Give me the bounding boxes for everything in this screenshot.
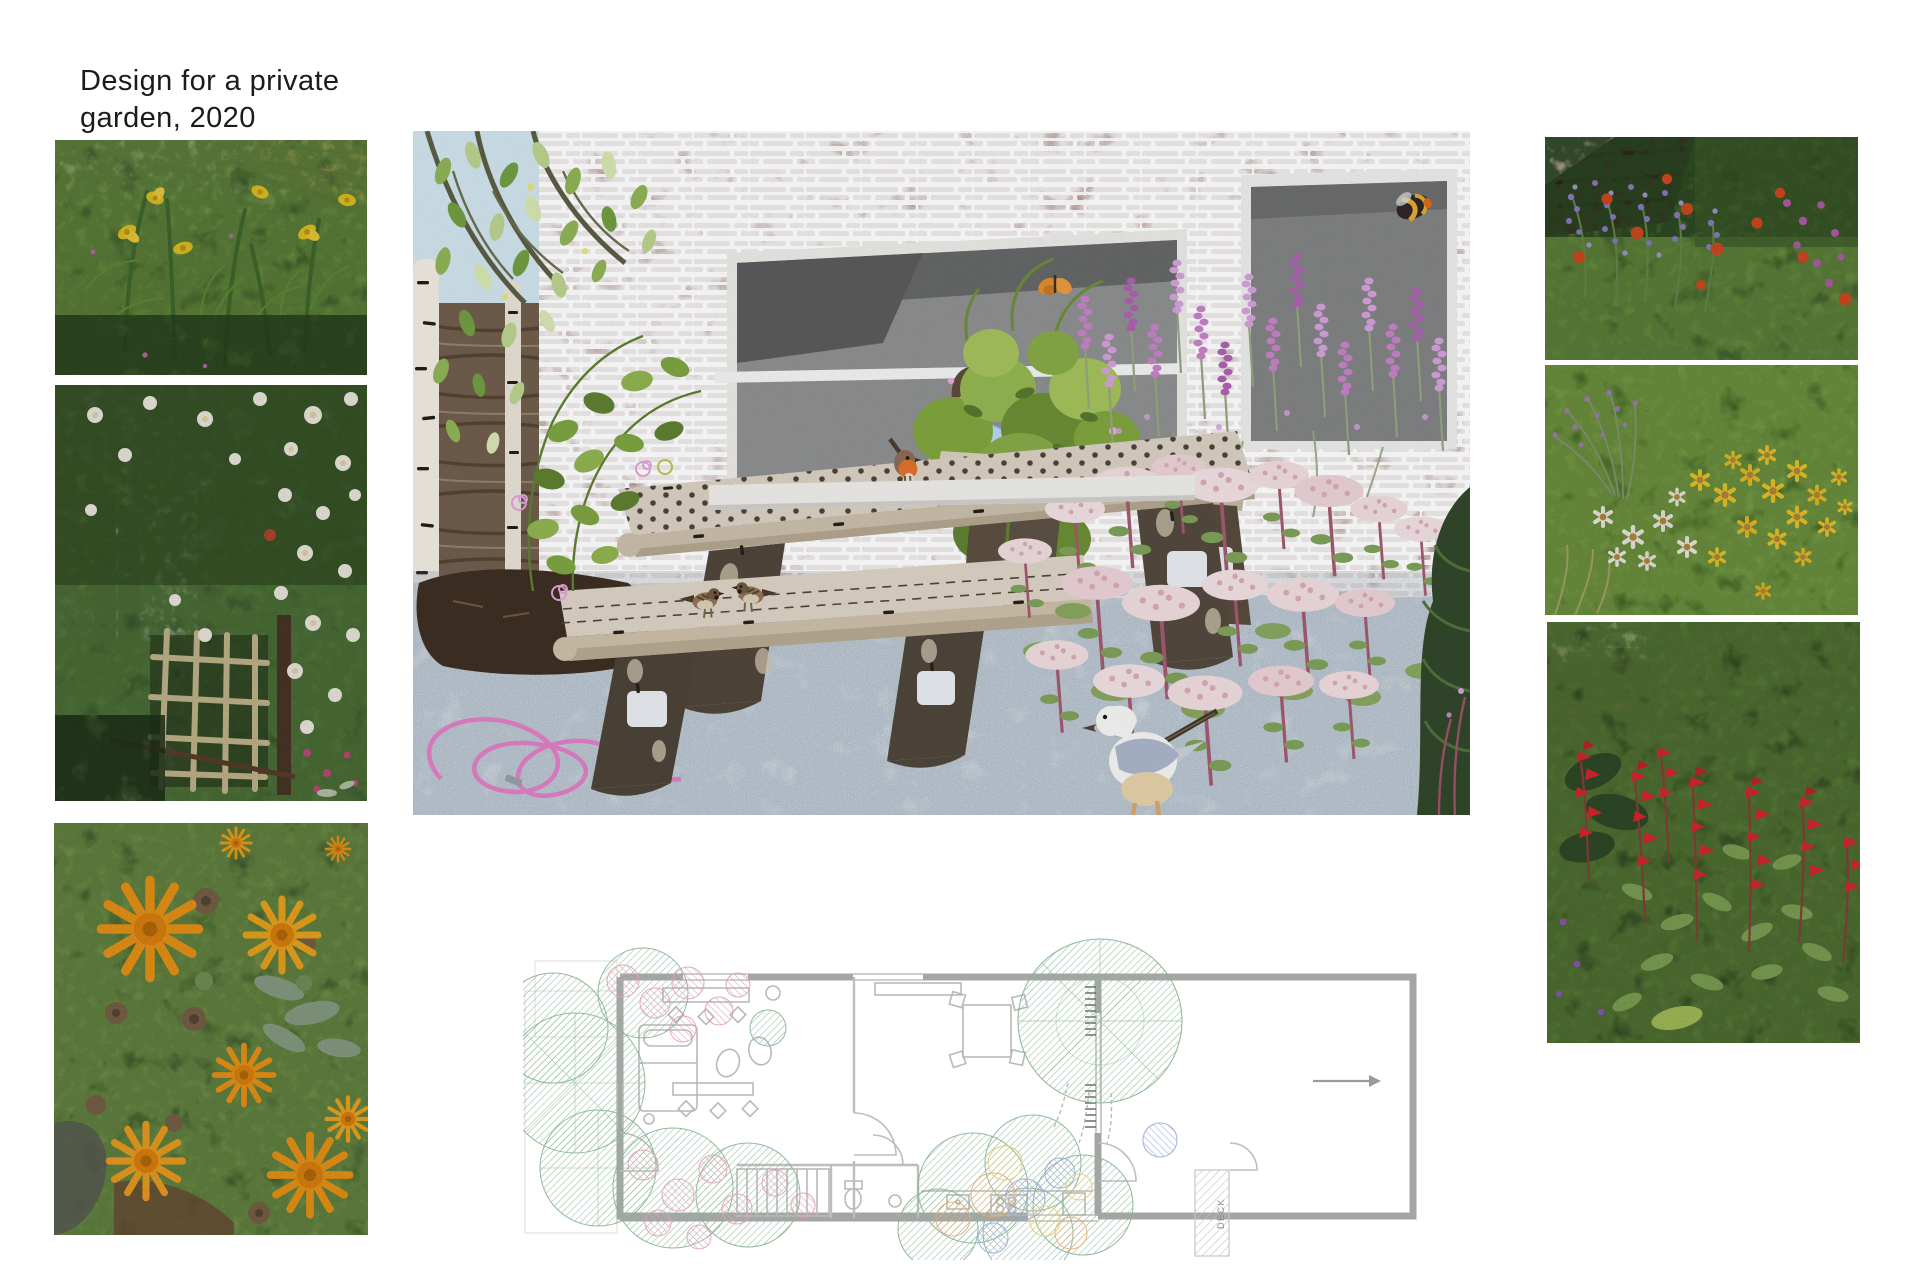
photo-coreopsis-daisies (1545, 365, 1858, 615)
photo-calendula-flowers (54, 823, 368, 1235)
portfolio-page: { "page": { "title": { "line1": "Design … (0, 0, 1915, 1271)
photo-ferns-yellow-irises-art (55, 140, 367, 375)
photo-pineapple-sage-art (1547, 622, 1860, 1043)
garden-illustration-art (413, 131, 1470, 815)
deck-label: DECK (1216, 1198, 1226, 1229)
photo-coreopsis-art (1545, 365, 1858, 615)
floor-plan: DECK (523, 933, 1420, 1260)
photo-catmint-geum (1545, 137, 1858, 360)
deck: DECK (1195, 1170, 1229, 1256)
photo-calendula-art (54, 823, 368, 1235)
photo-catmint-geum-art (1545, 137, 1858, 360)
photo-climbing-roses-art (55, 385, 367, 801)
page-title: Design for a private garden, 2020 (80, 63, 420, 137)
photo-ferns-yellow-irises (55, 140, 367, 375)
page-title-line1: Design for a private (80, 63, 420, 100)
photo-climbing-roses-trellis (55, 385, 367, 801)
photo-pineapple-sage (1547, 622, 1860, 1043)
page-title-line2: garden, 2020 (80, 100, 420, 137)
garden-illustration (413, 131, 1470, 815)
floor-plan-drawing: DECK (523, 933, 1420, 1260)
